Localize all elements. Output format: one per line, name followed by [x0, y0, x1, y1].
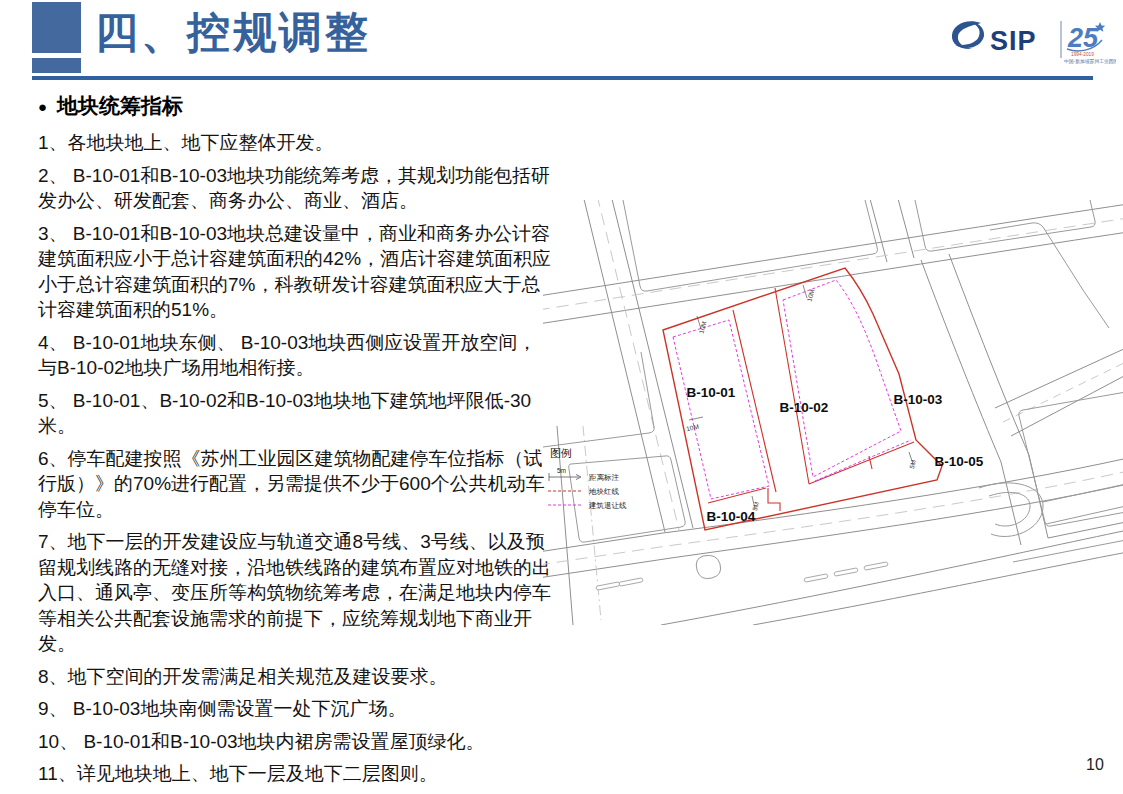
plot-label: B-10-05: [935, 454, 984, 469]
paragraph: 10、 B-10-01和B-10-03地块内裙房需设置屋顶绿化。: [38, 729, 554, 755]
header-accent-square: [32, 2, 81, 53]
paragraph: 1、各地块地上、地下应整体开发。: [38, 130, 554, 156]
map-legend: 图例 5m 距离标注 地块红线 建筑退让线: [548, 447, 627, 510]
sip-brand-text: SIP: [990, 26, 1037, 56]
legend-item-label: 距离标注: [589, 473, 620, 482]
section-heading: 地块统筹指标: [57, 92, 183, 120]
dimension-label: 10M: [686, 423, 700, 432]
paragraph: 3、 B-10-01和B-10-03地块总建设量中，商业和商务办公计容建筑面积应…: [38, 221, 554, 323]
sip-logo: SIP 25 1994-2019 中国-新加坡苏州工业园区: [948, 12, 1116, 70]
plot-divider: [708, 488, 766, 503]
plot-divider: [768, 488, 780, 511]
legend-item-label: 地块红线: [588, 487, 620, 496]
legend-dimension-sample: [549, 473, 581, 481]
anniversary-number: 25: [1067, 23, 1099, 53]
paragraph: 8、地下空间的开发需满足相关规范及建设要求。: [38, 664, 554, 690]
legend-item-label: 建筑退让线: [588, 501, 627, 510]
plot-label: B-10-01: [687, 385, 736, 400]
content-column: ● 地块统筹指标 1、各地块地上、地下应整体开发。 2、 B-10-01和B-1…: [38, 92, 554, 794]
plot-divider: [775, 288, 809, 484]
planning-map: 10M 10M 10M 5M 5M B-10-01 B-10-02 B-10-0…: [543, 200, 1123, 625]
page-title: 四、控规调整: [95, 4, 371, 62]
slide: 四、控规调整 SIP 25 1994-2019 中国-新加坡苏州工业园区 ● 地…: [0, 0, 1123, 794]
anniversary-org-text: 中国-新加坡苏州工业园区: [1064, 58, 1116, 64]
plot-labels: B-10-01 B-10-02 B-10-03 B-10-04 B-10-05: [687, 385, 984, 524]
header-rule: [32, 76, 1093, 80]
plot-label: B-10-03: [894, 392, 943, 407]
anniversary-dates: 1994-2019: [1071, 52, 1094, 57]
dimension-label: 10M: [806, 288, 816, 302]
road-centerlines: [543, 200, 1123, 620]
paragraph: 5、 B-10-01、B-10-02和B-10-03地块地下建筑地坪限低-30米…: [38, 388, 554, 439]
paragraph: 2、 B-10-01和B-10-03地块功能统筹考虑，其规划功能包括研发办公、研…: [38, 163, 554, 214]
paragraph: 4、 B-10-01地块东侧、 B-10-03地块西侧应设置开放空间，与B-10…: [38, 330, 554, 381]
paragraph: 7、地下一层的开发建设应与轨道交通8号线、3号线、以及预留规划线路的无缝对接，沿…: [38, 529, 554, 657]
paragraph: 11、详见地块地上、地下一层及地下二层图则。: [38, 761, 554, 787]
legend-scale-label: 5m: [557, 467, 566, 474]
plot-divider: [809, 442, 914, 484]
plot-divider: [733, 310, 776, 492]
dimension-label: 5M: [908, 459, 917, 470]
bullet-icon: ●: [38, 99, 47, 114]
section-heading-row: ● 地块统筹指标: [38, 92, 554, 120]
road-network: [543, 200, 1123, 625]
page-number: 10: [1086, 756, 1104, 774]
lane-markings: [596, 562, 888, 591]
sip-swoosh-icon: [952, 21, 984, 49]
legend-title: 图例: [550, 447, 572, 459]
header-accent-bar: [32, 58, 81, 73]
anniversary-mark: 25 1994-2019 中国-新加坡苏州工业园区: [1064, 22, 1116, 64]
plot-label: B-10-02: [780, 400, 829, 415]
plot-label: B-10-04: [707, 509, 756, 524]
paragraph: 9、 B-10-03地块南侧需设置一处下沉广场。: [38, 696, 554, 722]
paragraph: 6、停车配建按照《苏州工业园区建筑物配建停车位指标（试行版）》的70%进行配置，…: [38, 446, 554, 523]
